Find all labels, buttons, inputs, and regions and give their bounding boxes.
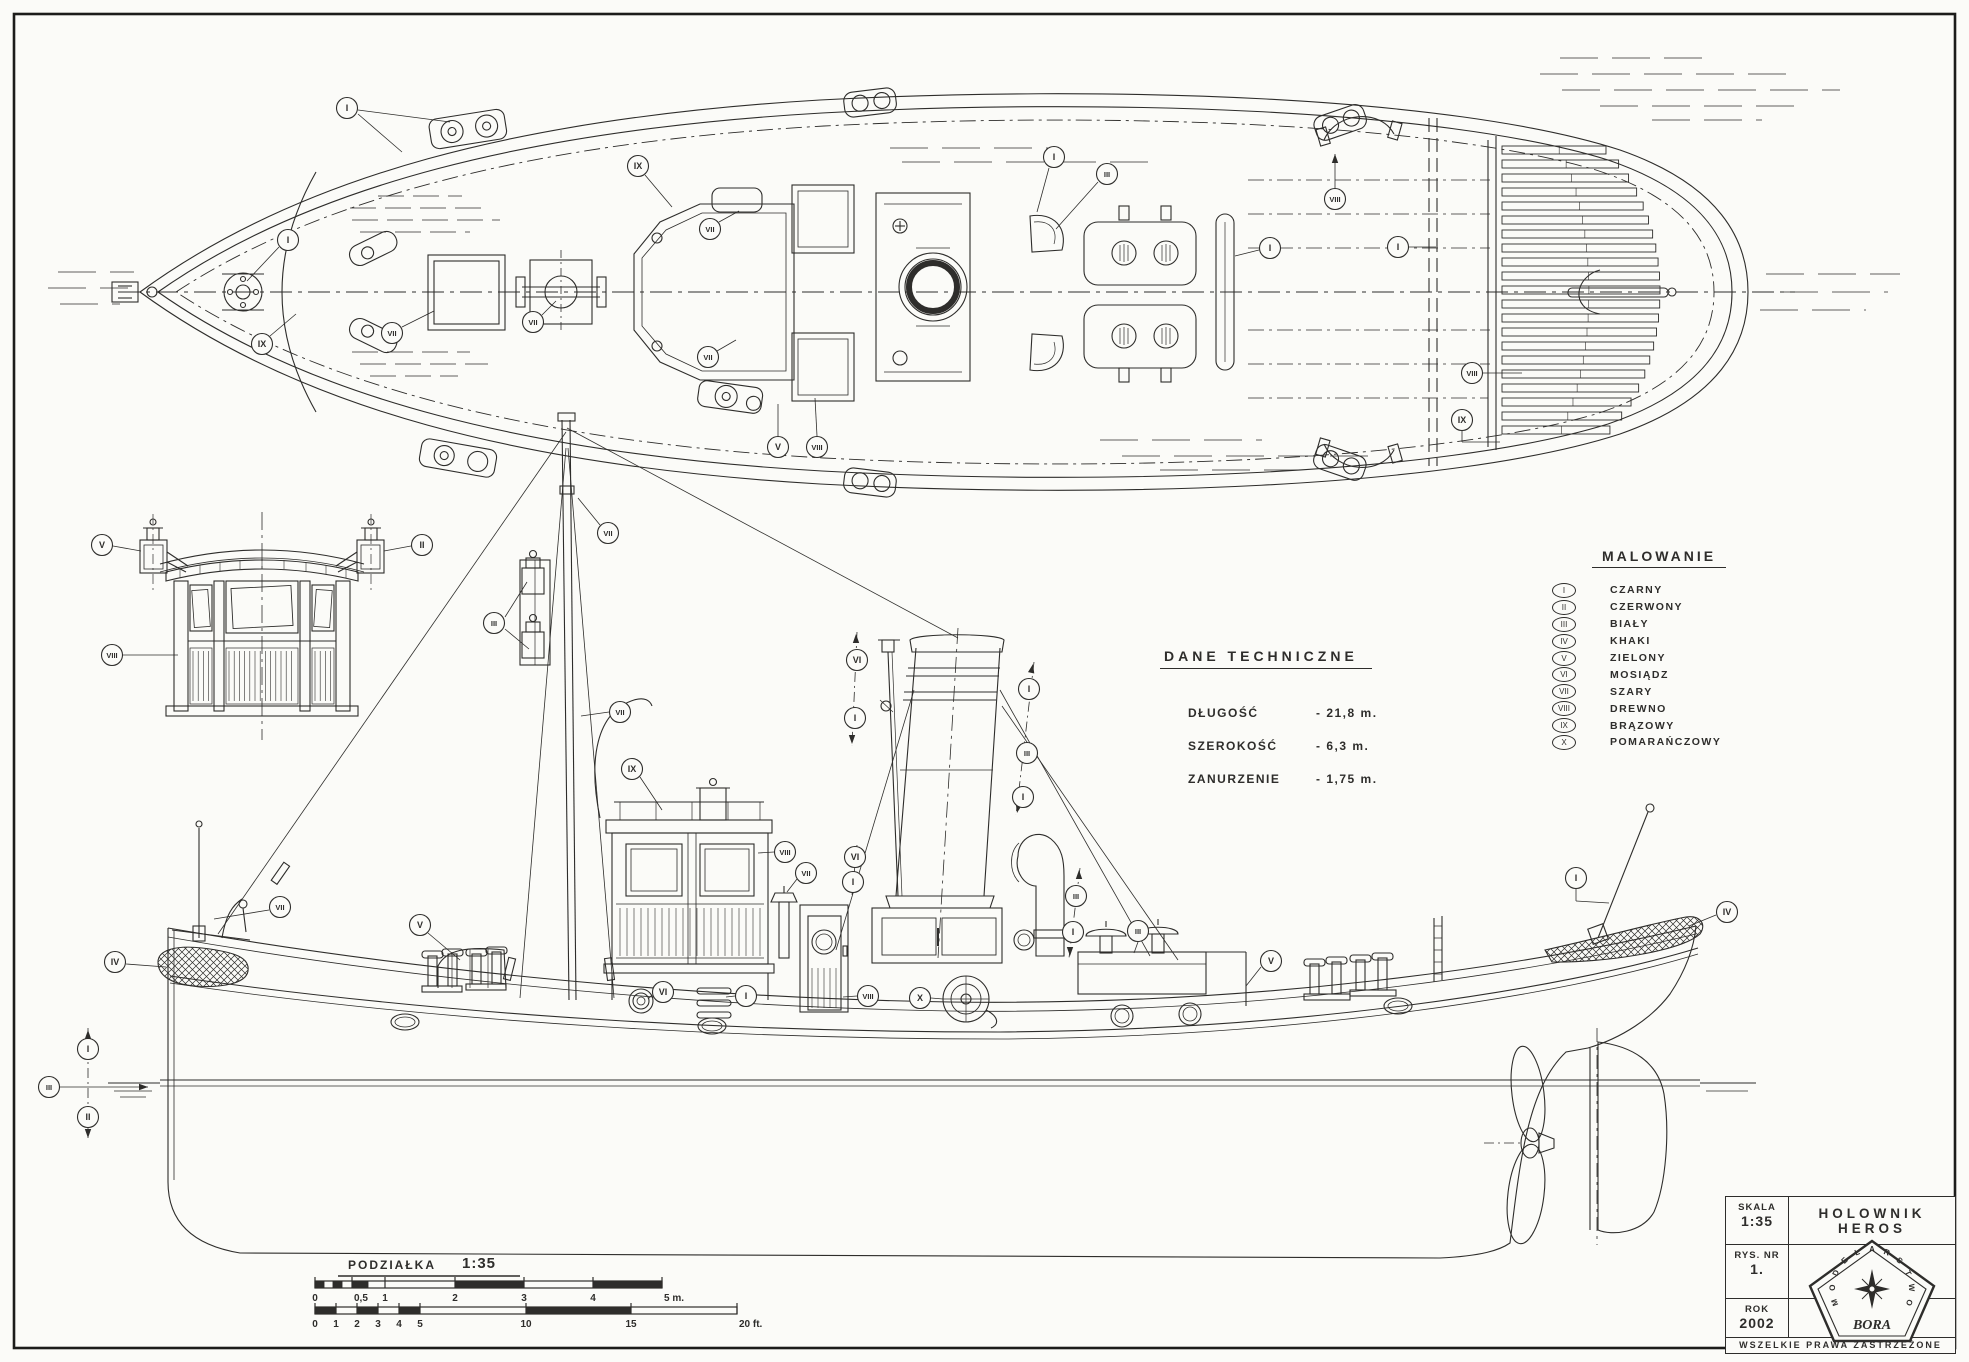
callout-roman-numeral: VII xyxy=(705,225,714,234)
paint-legend: MALOWANIE ICZARNYIICZERWONYIIIBIAŁYIVKHA… xyxy=(1552,548,1812,751)
side-galley-stack xyxy=(771,886,797,958)
side-anchor-davit xyxy=(222,899,247,938)
paint-legend-row: IVKHAKI xyxy=(1552,633,1812,650)
tech-row-label: SZEROKOŚĆ xyxy=(1188,730,1316,763)
side-cowl-vent xyxy=(1012,834,1065,956)
callout-roman-numeral: III xyxy=(491,619,497,628)
callout-leader xyxy=(1576,901,1609,903)
callout-roman-numeral: VII xyxy=(615,708,624,717)
paint-legend-row: VIISZARY xyxy=(1552,683,1812,700)
scale-bar-ratio: 1:35 xyxy=(462,1255,496,1272)
paint-legend-row: VIMOSIĄDZ xyxy=(1552,666,1812,683)
feet-tick-label: 10 xyxy=(520,1319,532,1330)
plan-bollards-top-mid xyxy=(843,87,898,118)
paint-code-circle: I xyxy=(1552,583,1576,598)
tech-row-label: DŁUGOŚĆ xyxy=(1188,697,1316,730)
side-towing-hook xyxy=(943,976,997,1028)
grating-slat xyxy=(1502,146,1606,154)
plan-skylight-fore-bottom-inner xyxy=(798,339,848,395)
side-bow-fender xyxy=(158,947,248,986)
callout-roman-numeral: IX xyxy=(1458,415,1467,425)
paint-legend-rows: ICZARNYIICZERWONYIIIBIAŁYIVKHAKIVZIELONY… xyxy=(1552,582,1812,751)
plan-plank-dashes xyxy=(350,196,500,376)
callout-roman-numeral: I xyxy=(87,1044,90,1054)
plan-davit-bottom-left xyxy=(418,438,498,479)
logo-cell xyxy=(1789,1245,1955,1298)
paint-name: MOSIĄDZ xyxy=(1610,669,1669,681)
callout-roman-numeral: V xyxy=(417,920,423,930)
arrowhead-icon xyxy=(1067,947,1073,956)
callout-leader xyxy=(843,996,857,997)
plan-fore-hatch xyxy=(428,255,505,330)
callout-roman-numeral: X xyxy=(917,993,923,1003)
feet-tick-label: 1 xyxy=(333,1319,339,1330)
callout-leader xyxy=(787,879,797,892)
meters-tick-label: 2 xyxy=(452,1293,458,1304)
grating-slat xyxy=(1502,426,1610,434)
callout-roman-numeral: IX xyxy=(634,161,643,171)
drawing-number-label: RYS. NR xyxy=(1726,1250,1788,1261)
side-bow-bulwark-cap xyxy=(172,930,250,940)
year-cell: ROK 2002 xyxy=(1726,1299,1789,1337)
paint-name: BIAŁY xyxy=(1610,618,1649,630)
grating-slat xyxy=(1502,216,1648,224)
drawing-number-cell: RYS. NR 1. xyxy=(1726,1245,1789,1298)
callout-roman-numeral: I xyxy=(1028,684,1031,694)
callout-roman-numeral: VII xyxy=(528,318,537,327)
front-lamp-port xyxy=(140,514,188,590)
callout-leader xyxy=(1037,168,1049,212)
grating-slat xyxy=(1502,258,1658,266)
meters-bar-segment xyxy=(593,1281,662,1288)
tech-row: SZEROKOŚĆ- 6,3 m. xyxy=(1188,730,1480,763)
callout-roman-numeral: III xyxy=(1135,927,1141,936)
scale-bars: 00,512345 m.012345101520 ft. xyxy=(312,1277,762,1330)
callout-roman-numeral: I xyxy=(852,877,855,887)
callout-roman-numeral: I xyxy=(1397,242,1400,252)
year-value: 2002 xyxy=(1726,1315,1788,1331)
paint-code-circle: II xyxy=(1552,600,1576,615)
paint-legend-row: IXBRĄZOWY xyxy=(1552,717,1812,734)
paint-code-circle: VII xyxy=(1552,684,1576,699)
side-flagstaff xyxy=(1588,804,1654,944)
plan-davit-bottom-mid xyxy=(697,380,764,415)
callout-roman-numeral: VI xyxy=(851,852,860,862)
callout-roman-numeral: VII xyxy=(387,329,396,338)
technical-data-block: DANE TECHNICZNE DŁUGOŚĆ- 21,8 m.SZEROKOŚ… xyxy=(1160,648,1480,796)
paint-code-circle: IX xyxy=(1552,718,1576,733)
front-post-left xyxy=(174,581,188,711)
paint-legend-row: ICZARNY xyxy=(1552,582,1812,599)
paint-code-circle: V xyxy=(1552,651,1576,666)
grating-slat xyxy=(1502,230,1653,238)
side-fore-bollards xyxy=(422,947,507,992)
feet-bar-segment xyxy=(357,1307,378,1314)
callout-leader xyxy=(931,998,943,999)
rights-strip: WSZELKIE PRAWA ZASTRZEŻONE xyxy=(1726,1338,1955,1353)
grating-slat xyxy=(1502,356,1650,364)
paint-name: CZARNY xyxy=(1610,584,1663,596)
feet-tick-label: 4 xyxy=(396,1319,402,1330)
callout-leader xyxy=(645,175,672,207)
side-deck-line-2 xyxy=(168,934,1696,1011)
paint-name: CZERWONY xyxy=(1610,601,1683,613)
side-rudder xyxy=(1590,1028,1667,1245)
feet-tick-label: 15 xyxy=(625,1319,637,1330)
wheelhouse-front-view xyxy=(140,512,384,740)
callout-roman-numeral: III xyxy=(1104,170,1110,179)
feet-bar-segment xyxy=(526,1307,631,1314)
callout-leader xyxy=(402,311,434,327)
callout-roman-numeral: IV xyxy=(1723,907,1732,917)
arrowhead-icon xyxy=(1076,870,1082,879)
plan-deck-plank-lines xyxy=(1248,180,1490,398)
side-hull-bottom xyxy=(168,928,1588,1258)
callout-leader xyxy=(1246,967,1261,986)
paint-name: KHAKI xyxy=(1610,635,1651,647)
callout-roman-numeral: V xyxy=(99,540,105,550)
plan-funnel-casing xyxy=(876,193,970,381)
callout-roman-numeral: VI xyxy=(659,987,668,997)
callout-leader xyxy=(1235,250,1259,256)
callout-leader xyxy=(214,910,269,919)
paint-code-circle: X xyxy=(1552,735,1576,750)
scale-value: 1:35 xyxy=(1726,1213,1788,1229)
grating-slat xyxy=(1502,328,1657,336)
arrowhead-icon xyxy=(853,634,859,643)
callout-leader xyxy=(581,712,609,716)
callout-roman-numeral: VIII xyxy=(779,848,790,857)
callout-leader xyxy=(113,546,141,551)
callout-roman-numeral: III xyxy=(1024,749,1030,758)
tech-row-label: ZANURZENIE xyxy=(1188,763,1316,796)
meters-bar-segment xyxy=(333,1281,342,1288)
grating-slat xyxy=(1502,174,1629,182)
side-wheelhouse xyxy=(604,779,774,1001)
arrowhead-icon xyxy=(85,1129,91,1138)
paint-name: BRĄZOWY xyxy=(1610,720,1675,732)
front-mullion-left xyxy=(214,581,224,711)
scale-cell: SKALA 1:35 xyxy=(1726,1197,1789,1244)
grating-slat xyxy=(1502,202,1643,210)
year-label: ROK xyxy=(1726,1304,1788,1315)
side-waterline xyxy=(108,1080,1756,1097)
side-companion-door xyxy=(800,905,848,1012)
scale-bar-title: PODZIAŁKA xyxy=(348,1258,436,1272)
plan-grating-frame xyxy=(1488,136,1496,450)
grating-slat xyxy=(1502,342,1654,350)
grating-slat xyxy=(1502,384,1639,392)
callout-roman-numeral: III xyxy=(46,1083,52,1092)
technical-data-title: DANE TECHNICZNE xyxy=(1160,648,1372,669)
meters-tick-label: 0,5 xyxy=(354,1293,368,1304)
blueprint-sheet: IIIXVIIVIIIXVIIVIIIIIIIVIIIIVIIIIXVVIIIV… xyxy=(0,0,1969,1362)
grating-slat xyxy=(1502,272,1659,280)
side-rub-strake xyxy=(170,948,1698,1032)
callout-roman-numeral: VIII xyxy=(1466,369,1477,378)
callout-roman-numeral: IV xyxy=(111,957,120,967)
meters-bar-segment xyxy=(455,1281,524,1288)
callout-roman-numeral: VIII xyxy=(1329,195,1340,204)
feet-tick-label: 3 xyxy=(375,1319,381,1330)
callout-roman-numeral: VII xyxy=(275,903,284,912)
paint-legend-title: MALOWANIE xyxy=(1592,548,1726,568)
callout-roman-numeral: I xyxy=(854,713,857,723)
callout-leader xyxy=(815,398,817,436)
callout-roman-numeral: I xyxy=(287,235,290,245)
callout-leader xyxy=(1056,182,1098,229)
callout-leader xyxy=(640,777,662,810)
grating-slat xyxy=(1502,286,1660,294)
paint-code-circle: VI xyxy=(1552,667,1576,682)
callout-roman-numeral: V xyxy=(775,442,781,452)
paint-legend-row: VIIIDREWNO xyxy=(1552,700,1812,717)
side-propeller xyxy=(1484,1044,1554,1245)
side-aft-bollards xyxy=(1304,953,1396,1000)
callout-roman-numeral: IX xyxy=(258,339,267,349)
callout-leader xyxy=(358,114,402,152)
arrowhead-icon xyxy=(1028,663,1036,673)
tech-row-value: - 1,75 m. xyxy=(1316,763,1378,796)
title-block: SKALA 1:35 HOLOWNIK HEROS RYS. NR 1. ROK… xyxy=(1725,1196,1956,1354)
plan-davit-top xyxy=(428,108,508,150)
scale-bar-block: PODZIAŁKA 1:35 00,512345 m.012345101520 … xyxy=(300,1244,860,1354)
paint-legend-row: IIIBIAŁY xyxy=(1552,616,1812,633)
callout-roman-numeral: IX xyxy=(628,764,637,774)
grating-slat xyxy=(1502,314,1659,322)
paint-code-circle: VIII xyxy=(1552,701,1576,716)
callout-roman-numeral: III xyxy=(1073,892,1079,901)
callout-roman-numeral: I xyxy=(1269,243,1272,253)
plan-skylight-fore-bottom xyxy=(792,333,854,401)
side-deck-line xyxy=(168,926,1696,1002)
water-shading xyxy=(48,58,1900,470)
callout-roman-numeral: VII xyxy=(801,869,810,878)
paint-legend-row: VZIELONY xyxy=(1552,650,1812,667)
meters-bar-segment xyxy=(315,1281,324,1288)
callout-roman-numeral: I xyxy=(1072,927,1075,937)
meters-tick-label: 4 xyxy=(590,1293,596,1304)
callout-roman-numeral: I xyxy=(346,103,349,113)
plan-bollards-bottom-aft xyxy=(1311,442,1368,483)
plan-bollards-bottom-mid xyxy=(843,467,898,498)
paint-code-circle: IV xyxy=(1552,634,1576,649)
arrowhead-icon xyxy=(85,1030,91,1039)
drawing-number-value: 1. xyxy=(1726,1261,1788,1277)
callout-roman-numeral: VIII xyxy=(862,992,873,1001)
callout-roman-numeral: I xyxy=(1575,873,1578,883)
feet-tick-label: 0 xyxy=(312,1319,318,1330)
side-funnel xyxy=(836,628,1178,960)
feet-bar-segment xyxy=(399,1307,420,1314)
plan-horn-vents xyxy=(1030,215,1063,370)
side-funnel-casing xyxy=(872,908,1002,963)
plan-engine-skylight xyxy=(1084,206,1196,382)
callout-roman-numeral: V xyxy=(1268,956,1274,966)
callout-leader xyxy=(758,852,774,853)
callout-roman-numeral: I xyxy=(1022,792,1025,802)
feet-tick-label: 2 xyxy=(354,1319,360,1330)
paint-name: SZARY xyxy=(1610,686,1653,698)
meters-tick-label: 0 xyxy=(312,1293,318,1304)
grating-slat xyxy=(1502,398,1631,406)
callout-roman-numeral: VII xyxy=(603,529,612,538)
front-mullion-right xyxy=(300,581,310,711)
plan-view xyxy=(112,87,1795,498)
side-jackstaff xyxy=(193,821,205,941)
callout-roman-numeral: VIII xyxy=(106,651,117,660)
callout-roman-numeral: II xyxy=(419,540,424,550)
tech-row-value: - 6,3 m. xyxy=(1316,730,1369,763)
meters-bar-segment xyxy=(352,1281,368,1288)
callout-roman-numeral: VIII xyxy=(811,443,822,452)
tech-row: ZANURZENIE- 1,75 m. xyxy=(1188,763,1480,796)
meters-tick-label: 3 xyxy=(521,1293,527,1304)
callout-leader xyxy=(717,340,736,351)
paint-name: POMARAŃCZOWY xyxy=(1610,736,1721,748)
scale-label: SKALA xyxy=(1726,1202,1788,1213)
side-aft-house-end xyxy=(1206,952,1246,1006)
grating-slat xyxy=(1502,188,1637,196)
paint-legend-row: IICZERWONY xyxy=(1552,599,1812,616)
arrowhead-icon xyxy=(849,735,855,744)
side-elevation-view xyxy=(108,413,1756,1258)
grating-slat xyxy=(1502,412,1622,420)
tech-row-value: - 21,8 m. xyxy=(1316,697,1378,730)
plan-skylight-fore-top-inner xyxy=(798,191,848,247)
logo-cell-lower xyxy=(1789,1299,1955,1337)
callout-layer: IIIXVIIVIIIXVIIVIIIIIIIVIIIIVIIIIXVVIIIV… xyxy=(39,98,1738,1141)
technical-data-rows: DŁUGOŚĆ- 21,8 m.SZEROKOŚĆ- 6,3 m.ZANURZE… xyxy=(1160,697,1480,796)
meters-tick-label: 5 m. xyxy=(664,1293,684,1304)
callout-axis xyxy=(1069,868,1080,958)
grating-slat xyxy=(1502,370,1645,378)
callout-leader xyxy=(247,247,279,281)
tech-row: DŁUGOŚĆ- 21,8 m. xyxy=(1188,697,1480,730)
paint-name: ZIELONY xyxy=(1610,652,1666,664)
plan-stern-grating xyxy=(1502,146,1660,434)
front-post-right xyxy=(336,581,350,711)
grating-slat xyxy=(1502,244,1656,252)
callout-roman-numeral: I xyxy=(745,991,748,1001)
feet-tick-label: 20 ft. xyxy=(739,1319,763,1330)
paint-code-circle: III xyxy=(1552,617,1576,632)
callout-roman-numeral: VI xyxy=(853,655,862,665)
callout-leader xyxy=(505,582,527,617)
paint-legend-row: XPOMARAŃCZOWY xyxy=(1552,734,1812,751)
ship-name: HOLOWNIK HEROS xyxy=(1789,1206,1955,1236)
callout-leader xyxy=(578,498,600,525)
callout-leader xyxy=(358,110,450,122)
paint-name: DREWNO xyxy=(1610,703,1667,715)
callout-roman-numeral: I xyxy=(1053,152,1056,162)
front-lamp-starboard xyxy=(336,514,384,590)
plan-skylight-fore-top xyxy=(792,185,854,253)
callout-leader xyxy=(1134,942,1138,953)
feet-tick-label: 5 xyxy=(417,1319,423,1330)
feet-bar-segment xyxy=(315,1307,336,1314)
callout-leader xyxy=(384,546,411,551)
callout-leader xyxy=(726,996,735,997)
callout-roman-numeral: II xyxy=(85,1112,90,1122)
meters-tick-label: 1 xyxy=(382,1293,388,1304)
callout-roman-numeral: VII xyxy=(703,353,712,362)
side-stern-fender xyxy=(1545,917,1703,962)
